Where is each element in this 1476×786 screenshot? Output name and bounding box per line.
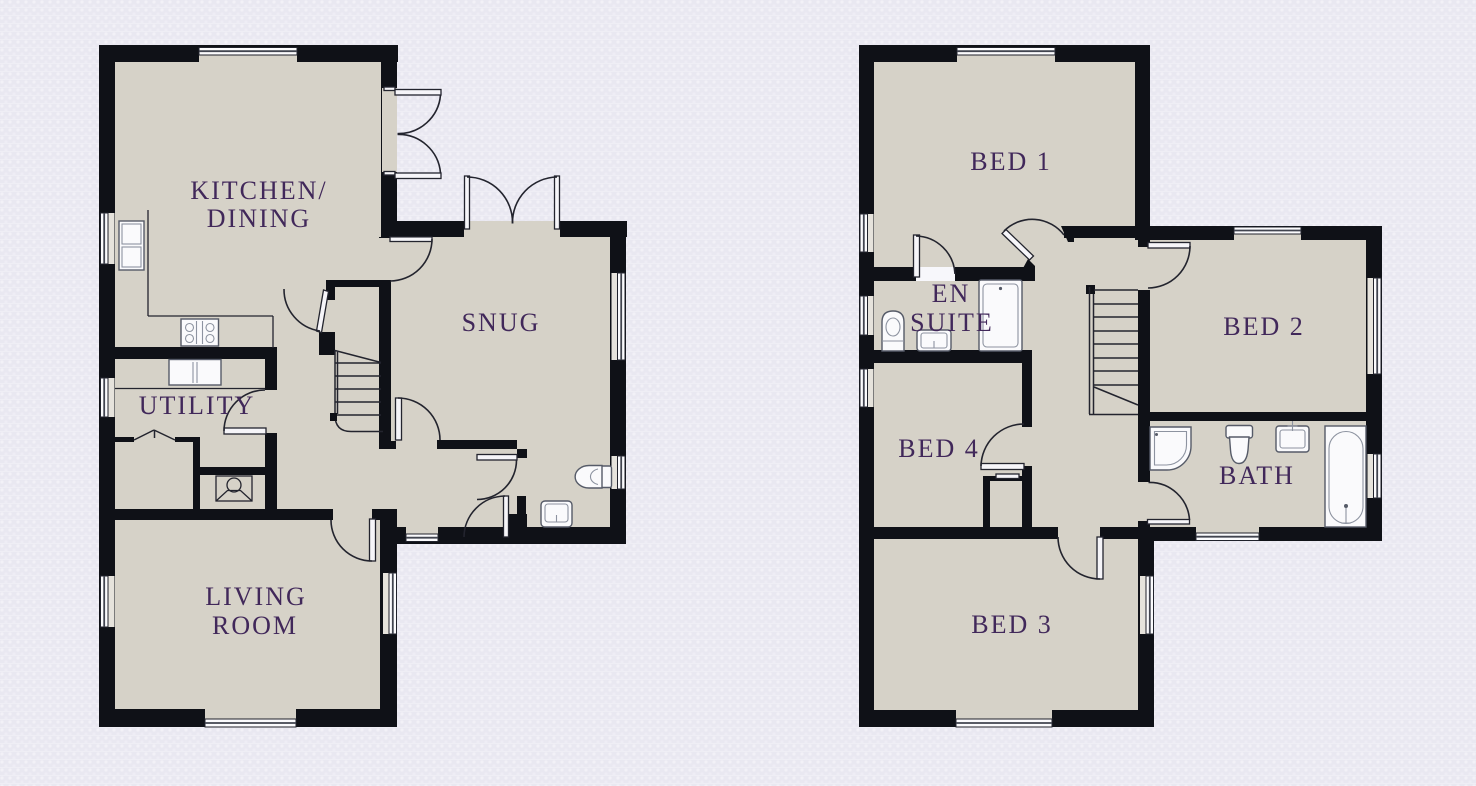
svg-text:BED 2: BED 2 bbox=[1223, 312, 1305, 341]
svg-text:SUITE: SUITE bbox=[910, 308, 994, 337]
svg-text:BED 3: BED 3 bbox=[971, 610, 1053, 639]
svg-text:BATH: BATH bbox=[1219, 461, 1295, 490]
svg-text:DINING: DINING bbox=[207, 204, 311, 233]
svg-text:ROOM: ROOM bbox=[212, 611, 298, 640]
svg-text:UTILITY: UTILITY bbox=[139, 391, 256, 420]
svg-text:KITCHEN/: KITCHEN/ bbox=[190, 176, 327, 205]
svg-text:EN: EN bbox=[932, 279, 971, 308]
svg-text:SNUG: SNUG bbox=[462, 308, 541, 337]
svg-text:LIVING: LIVING bbox=[205, 582, 307, 611]
svg-text:BED 4: BED 4 bbox=[898, 434, 980, 463]
svg-text:BED 1: BED 1 bbox=[970, 147, 1052, 176]
